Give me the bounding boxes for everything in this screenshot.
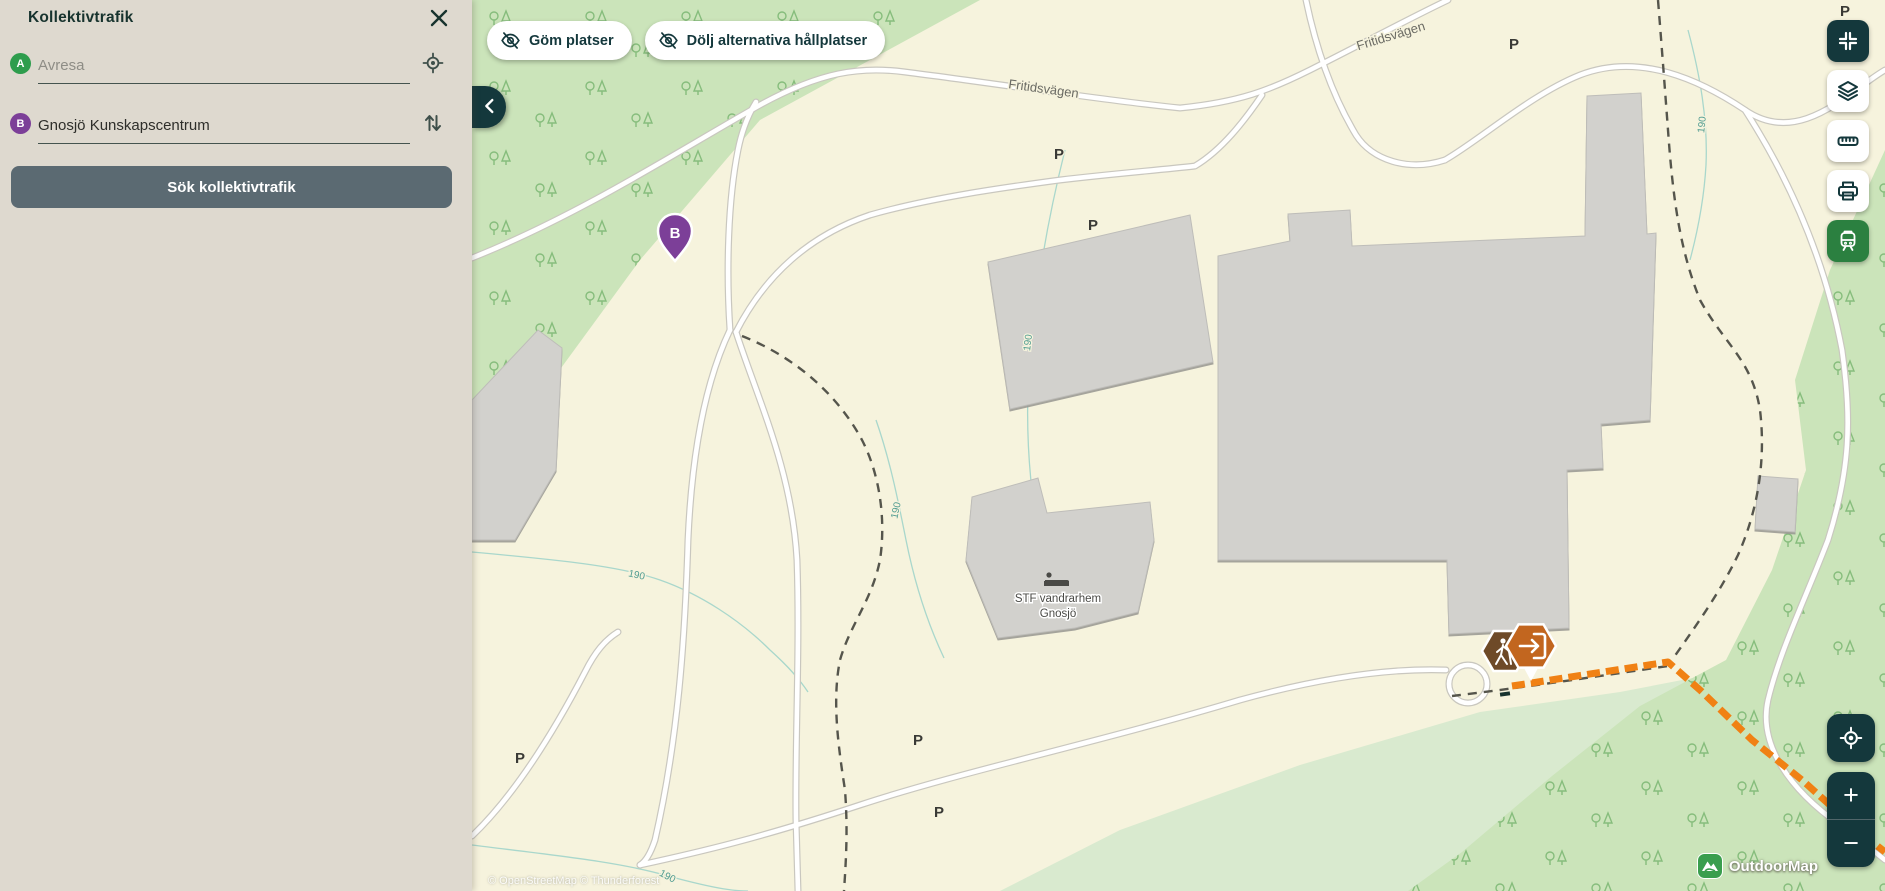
layers-icon: [1836, 79, 1860, 103]
parking-label: P: [934, 804, 944, 821]
destination-input[interactable]: [38, 108, 410, 144]
departure-input[interactable]: [38, 48, 410, 84]
parking-label: P: [515, 750, 525, 767]
layers-button[interactable]: [1827, 70, 1869, 112]
hide-places-label: Göm platser: [529, 33, 614, 49]
destination-marker-badge: B: [10, 113, 31, 134]
use-my-location-button[interactable]: [420, 51, 446, 77]
map-toolbar: [1827, 20, 1869, 262]
logo-text: OutdoorMap: [1729, 858, 1818, 875]
chevron-left-icon: [479, 95, 501, 117]
hide-places-button[interactable]: Göm platser: [487, 21, 632, 60]
contour-label: 190: [1022, 333, 1035, 351]
parking-label: P: [1054, 146, 1064, 163]
place-label: STF vandrarhem: [1015, 593, 1101, 605]
swap-directions-button[interactable]: [420, 111, 446, 137]
map-area: Fritidsvägen Fritidsvägen 190 190 190 19…: [472, 0, 1885, 891]
panel-title: Kollektivtrafik: [28, 9, 134, 27]
parking-label: P: [1840, 3, 1850, 20]
tram-icon: [1836, 229, 1860, 253]
locate-me-button[interactable]: [1827, 714, 1875, 762]
parking-label: P: [913, 732, 923, 749]
print-button[interactable]: [1827, 170, 1869, 212]
hide-alt-stops-label: Dölj alternativa hållplatser: [687, 33, 868, 49]
zoom-out-button[interactable]: −: [1827, 820, 1875, 867]
eye-off-icon: [500, 30, 521, 51]
measure-button[interactable]: [1827, 120, 1869, 162]
search-transit-button[interactable]: Sök kollektivtrafik: [11, 166, 452, 208]
parking-label: P: [1509, 36, 1519, 53]
hide-alt-stops-button[interactable]: Dölj alternativa hållplatser: [645, 21, 886, 60]
contour-label: 190: [1696, 115, 1709, 133]
map-toggles: Göm platser Dölj alternativa hållplatser: [487, 21, 885, 60]
close-panel-button[interactable]: [426, 6, 452, 32]
ruler-icon: [1836, 129, 1860, 153]
printer-icon: [1836, 179, 1860, 203]
place-label: Gnosjö: [1040, 608, 1076, 620]
swap-arrows-icon: [421, 111, 445, 135]
zoom-in-button[interactable]: +: [1827, 772, 1875, 819]
exit-fullscreen-button[interactable]: [1827, 20, 1869, 62]
transit-panel: Kollektivtrafik A B Sök kollektivtrafik: [0, 0, 472, 891]
exit-fullscreen-icon: [1836, 29, 1860, 53]
mountain-logo-icon: [1697, 853, 1723, 879]
eye-off-icon: [658, 30, 679, 51]
locate-icon: [1838, 725, 1864, 751]
outdoormap-logo[interactable]: OutdoorMap: [1697, 853, 1818, 879]
transit-layer-button[interactable]: [1827, 220, 1869, 262]
zoom-control: + −: [1827, 772, 1875, 867]
close-icon: [428, 7, 450, 29]
parking-label: P: [1088, 217, 1098, 234]
map-canvas[interactable]: Fritidsvägen Fritidsvägen 190 190 190 19…: [472, 0, 1885, 891]
map-attribution: © OpenStreetMap © Thunderforest: [488, 875, 659, 887]
pin-letter: B: [670, 225, 681, 242]
origin-marker-badge: A: [10, 53, 31, 74]
crosshair-icon: [421, 51, 445, 75]
